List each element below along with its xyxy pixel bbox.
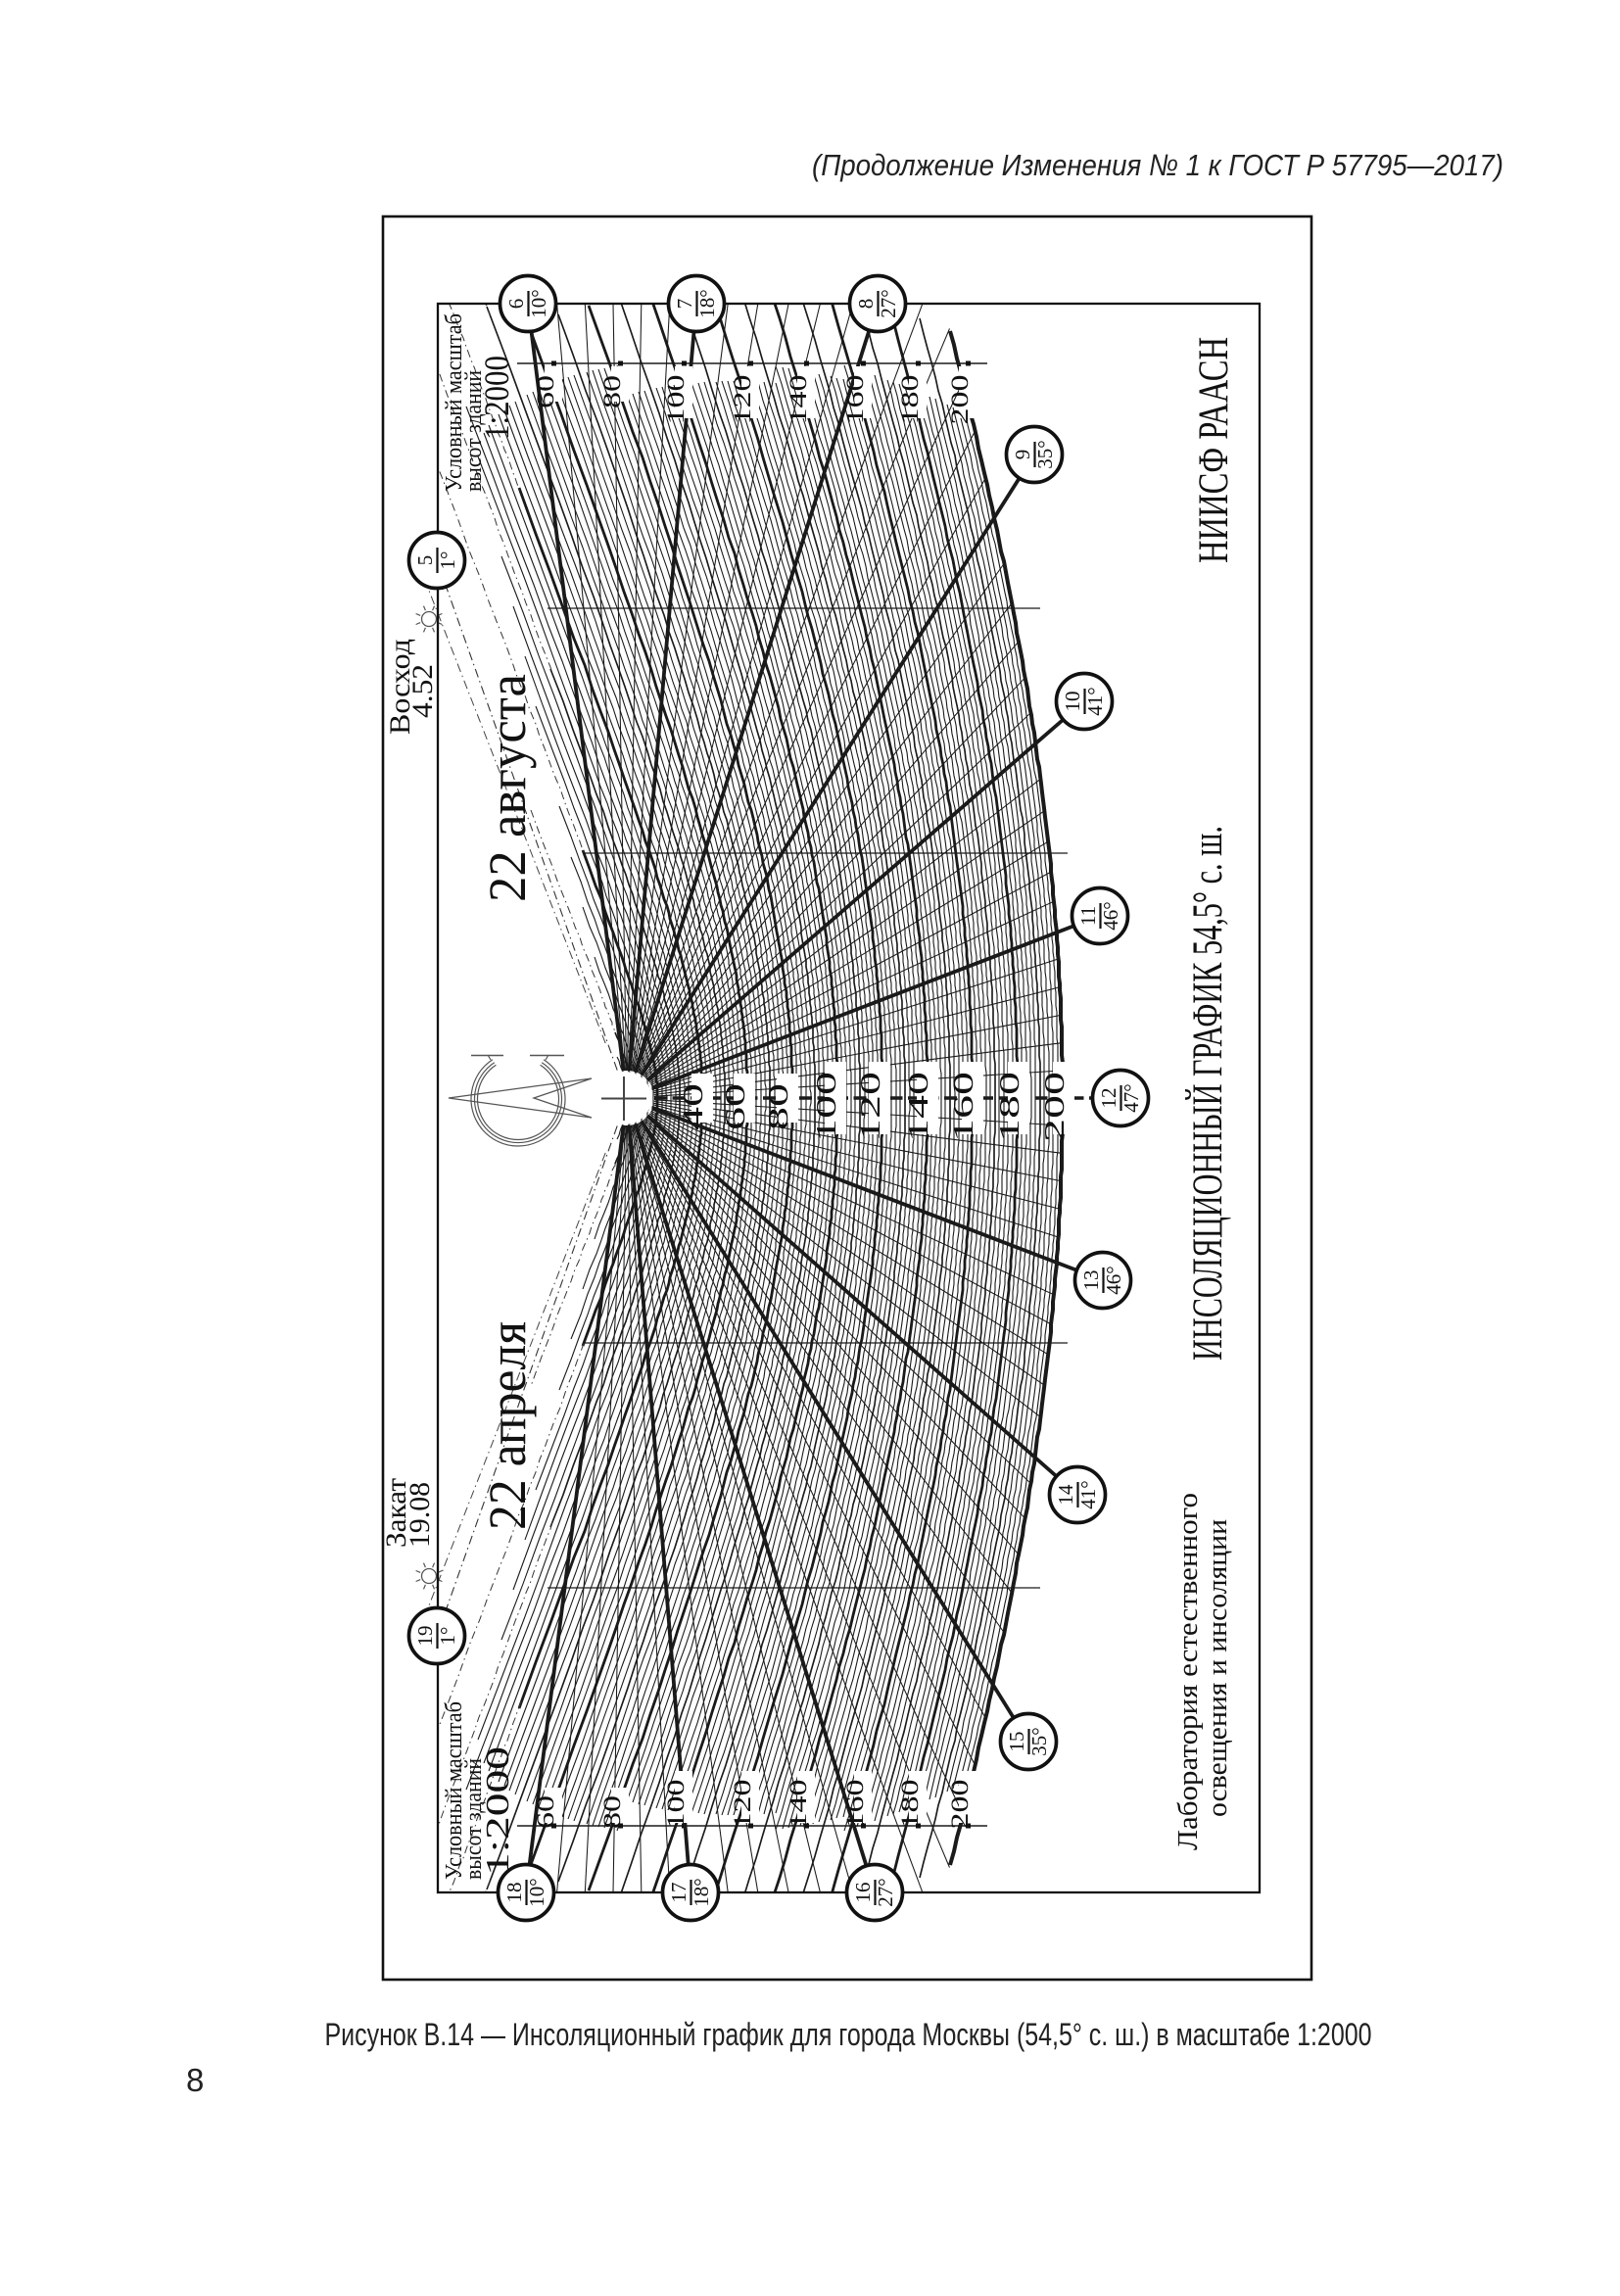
svg-text:18°: 18° bbox=[690, 1878, 713, 1906]
svg-text:140: 140 bbox=[903, 1072, 934, 1142]
svg-text:27°: 27° bbox=[874, 1878, 897, 1906]
svg-text:35°: 35° bbox=[1027, 1727, 1051, 1755]
svg-text:80: 80 bbox=[599, 1795, 626, 1829]
svg-text:60: 60 bbox=[533, 375, 559, 408]
svg-text:14: 14 bbox=[1054, 1484, 1077, 1506]
svg-text:100: 100 bbox=[663, 1780, 690, 1830]
svg-text:7: 7 bbox=[673, 299, 696, 310]
svg-text:180: 180 bbox=[994, 1072, 1025, 1142]
svg-text:10: 10 bbox=[1061, 692, 1084, 712]
svg-text:80: 80 bbox=[763, 1083, 794, 1130]
svg-text:41°: 41° bbox=[1076, 1480, 1100, 1508]
svg-text:180: 180 bbox=[897, 375, 924, 425]
svg-text:6: 6 bbox=[504, 299, 528, 310]
svg-text:100: 100 bbox=[663, 375, 690, 425]
svg-text:Лаборатория естественного: Лаборатория естественного bbox=[1173, 1493, 1204, 1850]
svg-text:27°: 27° bbox=[877, 289, 900, 317]
svg-text:18°: 18° bbox=[695, 289, 719, 317]
svg-text:1:2000: 1:2000 bbox=[477, 356, 516, 440]
svg-text:160: 160 bbox=[842, 375, 869, 425]
svg-text:47°: 47° bbox=[1120, 1083, 1143, 1112]
svg-text:11: 11 bbox=[1076, 906, 1100, 926]
svg-text:200: 200 bbox=[947, 375, 974, 425]
svg-text:120: 120 bbox=[855, 1072, 886, 1142]
svg-text:120: 120 bbox=[730, 1780, 756, 1830]
svg-text:ИНСОЛЯЦИОННЫЙ ГРАФИК 54,5° с.: ИНСОЛЯЦИОННЫЙ ГРАФИК 54,5° с. ш. bbox=[1185, 826, 1231, 1361]
svg-text:22 апреля: 22 апреля bbox=[478, 1321, 537, 1530]
svg-text:41°: 41° bbox=[1083, 687, 1107, 715]
svg-text:13: 13 bbox=[1079, 1270, 1103, 1291]
svg-text:46°: 46° bbox=[1099, 901, 1122, 930]
svg-text:100: 100 bbox=[811, 1072, 842, 1142]
svg-text:19.08: 19.08 bbox=[404, 1482, 436, 1548]
svg-text:1:2000: 1:2000 bbox=[480, 1746, 516, 1876]
svg-text:(Продолжение Изменения № 1 к Г: (Продолжение Изменения № 1 к ГОСТ Р 5779… bbox=[812, 148, 1503, 182]
svg-text:200: 200 bbox=[1039, 1072, 1071, 1142]
svg-text:140: 140 bbox=[786, 1780, 812, 1830]
svg-text:40: 40 bbox=[678, 1083, 709, 1130]
svg-text:1°: 1° bbox=[436, 551, 459, 570]
svg-text:12: 12 bbox=[1097, 1088, 1120, 1109]
svg-text:22 августа: 22 августа bbox=[478, 674, 537, 902]
svg-text:60: 60 bbox=[720, 1083, 751, 1130]
svg-text:8: 8 bbox=[854, 299, 878, 310]
svg-text:120: 120 bbox=[730, 375, 756, 425]
svg-text:35°: 35° bbox=[1033, 440, 1057, 468]
svg-text:9: 9 bbox=[1011, 450, 1034, 460]
svg-text:4.52: 4.52 bbox=[406, 664, 439, 718]
svg-text:10°: 10° bbox=[525, 1878, 548, 1906]
svg-text:Рисунок В.14 — Инсоляционный г: Рисунок В.14 — Инсоляционный график для … bbox=[325, 2017, 1372, 2052]
svg-text:16: 16 bbox=[851, 1883, 875, 1903]
svg-text:80: 80 bbox=[599, 375, 626, 408]
svg-text:160: 160 bbox=[948, 1072, 979, 1142]
svg-text:НИИСФ РААСН: НИИСФ РААСН bbox=[1191, 337, 1237, 563]
svg-text:180: 180 bbox=[897, 1780, 924, 1830]
svg-text:1°: 1° bbox=[436, 1627, 459, 1646]
svg-text:19: 19 bbox=[413, 1626, 437, 1647]
svg-text:200: 200 bbox=[947, 1780, 974, 1830]
svg-text:5: 5 bbox=[413, 555, 437, 566]
svg-text:160: 160 bbox=[842, 1780, 869, 1830]
svg-text:18: 18 bbox=[502, 1883, 526, 1903]
svg-text:140: 140 bbox=[786, 375, 812, 425]
svg-text:17: 17 bbox=[667, 1883, 691, 1903]
svg-text:46°: 46° bbox=[1102, 1266, 1125, 1294]
svg-text:10°: 10° bbox=[527, 289, 550, 317]
svg-text:8: 8 bbox=[186, 2062, 204, 2098]
svg-text:освещения и инсоляции: освещения и инсоляции bbox=[1203, 1519, 1233, 1817]
svg-text:60: 60 bbox=[533, 1795, 559, 1829]
svg-text:15: 15 bbox=[1005, 1732, 1028, 1752]
